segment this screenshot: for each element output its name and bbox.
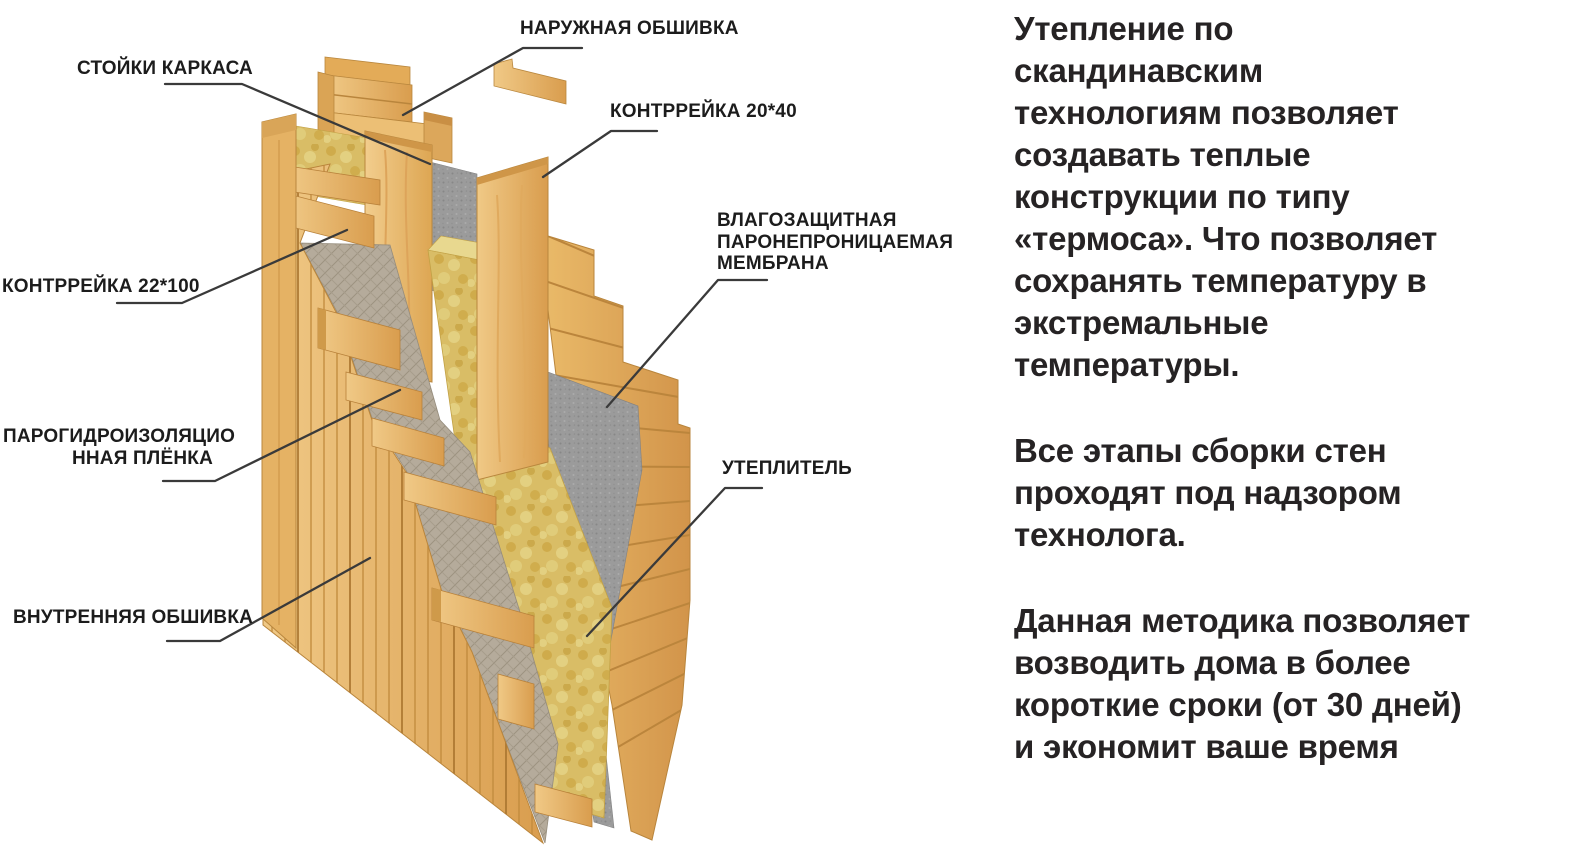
description-paragraph-1: Утепление по скандинавским технологиям п… — [1014, 8, 1574, 386]
label-frame-studs: СТОЙКИ КАРКАСА — [77, 58, 253, 80]
leader-counter-batten-small — [543, 131, 657, 177]
counter-batten-20x40-board — [477, 157, 548, 480]
label-inner-cladding: ВНУТРЕННЯЯ ОБШИВКА — [13, 607, 253, 629]
label-counter-batten-large: КОНТРРЕЙКА 22*100 — [2, 276, 200, 298]
description-paragraph-2: Все этапы сборки стен проходят под надзо… — [1014, 430, 1574, 556]
wall-diagram: НАРУЖНАЯ ОБШИВКА СТОЙКИ КАРКАСА КОНТРРЕЙ… — [0, 0, 990, 856]
description-text-block: Утепление по скандинавским технологиям п… — [1014, 8, 1574, 768]
label-membrane: ВЛАГОЗАЩИТНАЯ ПАРОНЕПРОНИЦАЕМАЯ МЕМБРАНА — [717, 210, 953, 275]
description-paragraph-3: Данная методика позволяет возводить дома… — [1014, 600, 1574, 768]
outer-cladding-top-plank — [494, 59, 566, 104]
infographic-page: НАРУЖНАЯ ОБШИВКА СТОЙКИ КАРКАСА КОНТРРЕЙ… — [0, 0, 1584, 856]
label-insulation: УТЕПЛИТЕЛЬ — [722, 458, 852, 480]
label-counter-batten-small: КОНТРРЕЙКА 20*40 — [610, 101, 797, 123]
label-outer-cladding: НАРУЖНАЯ ОБШИВКА — [520, 18, 739, 40]
left-edge-stud — [262, 114, 296, 648]
label-vapor-film: ПАРОГИДРОИЗОЛЯЦИО ННАЯ ПЛЁНКА — [3, 426, 213, 469]
